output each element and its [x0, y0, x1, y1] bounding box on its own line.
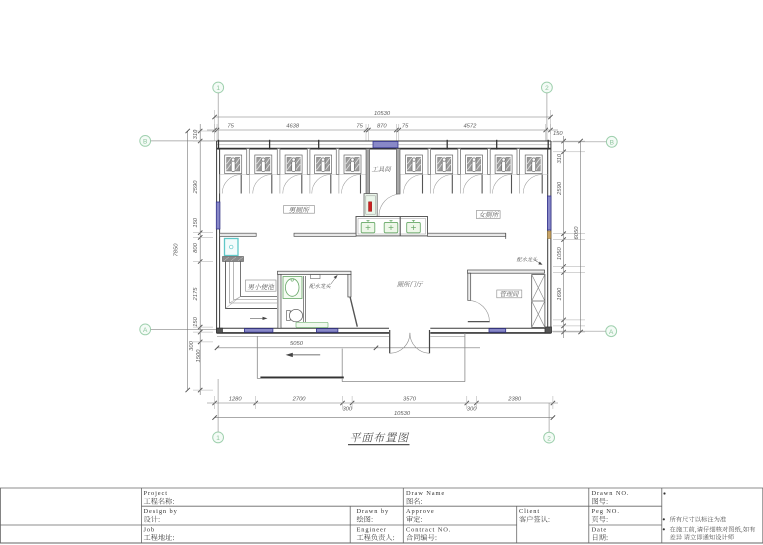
svg-text:Draw Name: Draw Name: [406, 490, 445, 497]
svg-text:75: 75: [356, 124, 363, 130]
svg-text:300: 300: [189, 340, 195, 350]
svg-text:B: B: [143, 139, 147, 146]
svg-text:4638: 4638: [286, 124, 300, 130]
svg-text:10530: 10530: [394, 411, 411, 417]
svg-text:300: 300: [467, 407, 477, 413]
svg-text:2: 2: [547, 435, 551, 442]
svg-text:150: 150: [193, 217, 199, 227]
svg-text:1500: 1500: [196, 349, 202, 363]
svg-text:Engineer: Engineer: [357, 526, 387, 533]
svg-text:B: B: [610, 140, 614, 147]
svg-text:2700: 2700: [292, 396, 307, 402]
svg-text:10530: 10530: [374, 111, 391, 117]
svg-text:A: A: [143, 327, 148, 334]
svg-text:Project: Project: [144, 490, 168, 497]
svg-text:150: 150: [553, 131, 563, 137]
svg-text:Job: Job: [144, 526, 156, 533]
svg-text:150: 150: [193, 316, 199, 326]
svg-text:75: 75: [227, 124, 234, 130]
svg-text:310: 310: [193, 129, 199, 139]
svg-text:Drawn by: Drawn by: [357, 508, 390, 515]
svg-text:Approve: Approve: [406, 508, 435, 515]
svg-text:Design by: Design by: [144, 508, 178, 515]
svg-text:5050: 5050: [290, 341, 304, 347]
svg-text:3570: 3570: [403, 396, 417, 402]
svg-text:1690: 1690: [557, 287, 563, 301]
svg-text:1: 1: [216, 85, 220, 92]
svg-text:Drawn NO.: Drawn NO.: [592, 490, 630, 497]
svg-text:4572: 4572: [463, 124, 477, 130]
svg-text:870: 870: [377, 124, 387, 130]
svg-text:1: 1: [216, 435, 220, 442]
svg-text:Client: Client: [519, 508, 540, 515]
svg-text:310: 310: [557, 153, 563, 163]
svg-text:300: 300: [342, 407, 352, 413]
svg-text:Contract NO.: Contract NO.: [406, 526, 451, 533]
svg-text:1280: 1280: [229, 396, 243, 402]
svg-text:6050: 6050: [574, 226, 580, 240]
svg-text:2175: 2175: [193, 287, 199, 302]
svg-text:Peg NO.: Peg NO.: [592, 508, 620, 515]
svg-text:2590: 2590: [557, 181, 563, 196]
svg-text:2: 2: [545, 85, 549, 92]
svg-text:1050: 1050: [557, 246, 563, 260]
svg-text:7850: 7850: [174, 243, 180, 257]
svg-text:A: A: [609, 329, 614, 336]
svg-text:2380: 2380: [507, 396, 522, 402]
svg-text:Date: Date: [592, 526, 608, 533]
svg-text:800: 800: [193, 242, 199, 252]
svg-text:2590: 2590: [193, 180, 199, 195]
svg-text:75: 75: [402, 124, 409, 130]
